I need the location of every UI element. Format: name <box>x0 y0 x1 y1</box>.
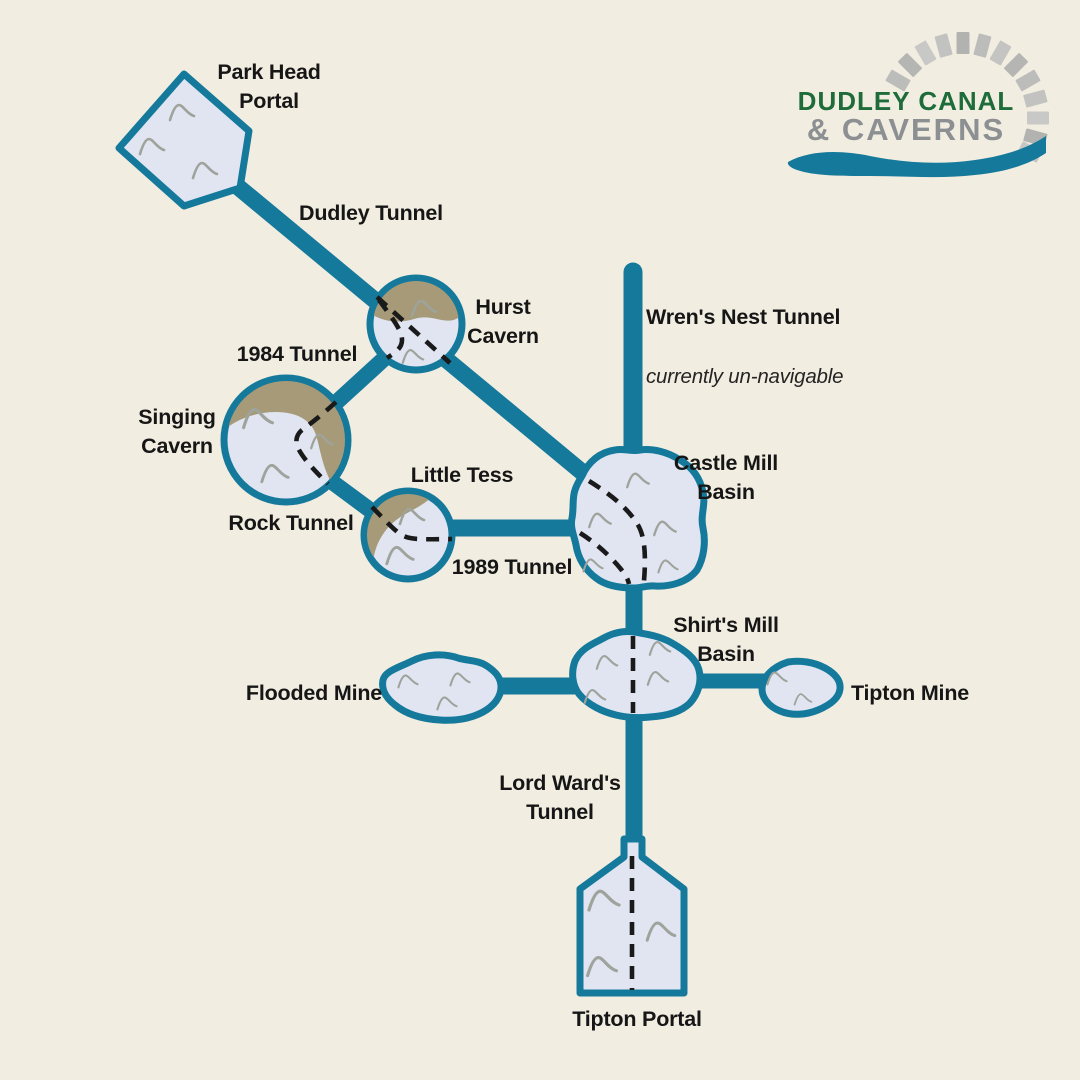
label-shirts-mill-basin: Shirt's Mill Basin <box>673 611 778 669</box>
label-hurst-cavern: Hurst Cavern <box>467 293 539 351</box>
flooded-mine-shape <box>383 655 501 720</box>
label-lord-wards-tunnel: Lord Ward's Tunnel <box>499 769 621 827</box>
label-castle-mill-basin: Castle Mill Basin <box>674 449 778 507</box>
label-wrens-nest-tunnel: Wren's Nest Tunnel currently un-navigabl… <box>646 274 843 420</box>
wrens-nest-tunnel-title: Wren's Nest Tunnel <box>646 303 843 332</box>
label-dudley-tunnel: Dudley Tunnel <box>299 199 443 228</box>
label-singing-cavern: Singing Cavern <box>138 403 215 461</box>
logo-wordmark-line2: & CAVERNS <box>807 112 1005 148</box>
label-1989-tunnel: 1989 Tunnel <box>452 553 572 582</box>
label-flooded-mine: Flooded Mine <box>246 679 382 708</box>
tipton-mine-shape <box>762 661 840 714</box>
label-little-tess: Little Tess <box>411 461 514 490</box>
cavern-wall-marks <box>140 105 811 976</box>
label-tipton-mine: Tipton Mine <box>851 679 969 708</box>
label-1984-tunnel: 1984 Tunnel <box>237 340 357 369</box>
label-park-head-portal: Park Head Portal <box>217 58 320 116</box>
label-tipton-portal: Tipton Portal <box>572 1005 702 1034</box>
canal-map: Park Head Portal Dudley Tunnel Hurst Cav… <box>0 0 1080 1080</box>
wrens-nest-tunnel-note: currently un-navigable <box>646 362 843 391</box>
label-rock-tunnel: Rock Tunnel <box>228 509 353 538</box>
map-graphic <box>0 0 1080 1080</box>
